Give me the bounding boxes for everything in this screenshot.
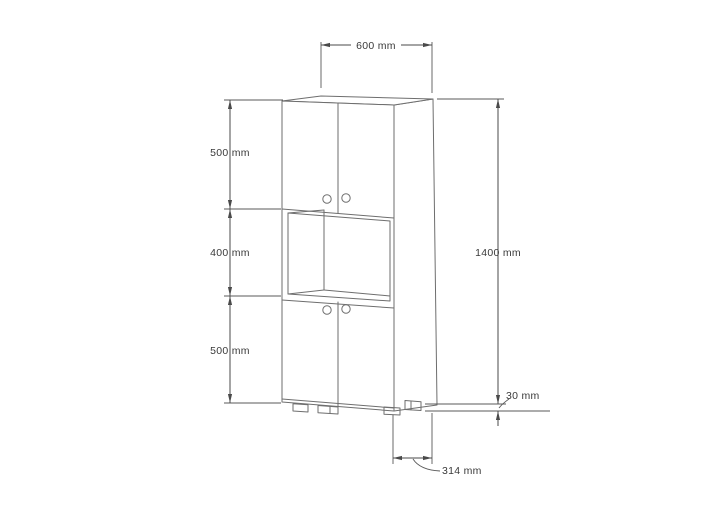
- dimension-sections: 500 mm 400 mm 500 mm: [210, 100, 283, 403]
- dim-label-top-section: 500 mm: [210, 147, 250, 159]
- foot: [293, 404, 308, 412]
- leader-line: [413, 459, 440, 471]
- foot: [318, 406, 338, 415]
- dimension-bottom-section: 500 mm: [210, 296, 250, 403]
- dim-label-middle-section: 400 mm: [210, 247, 250, 259]
- dimension-base-height: 30 mm: [425, 390, 550, 426]
- cabinet: [282, 96, 437, 415]
- dim-label-width: 600 mm: [356, 40, 396, 52]
- dimension-total-height: 1400 mm: [437, 99, 521, 404]
- diagram-canvas: 600 mm 500 mm 400 mm 500 mm 1400 mm 30 m…: [0, 0, 720, 509]
- dim-label-depth: 314 mm: [442, 465, 482, 477]
- cabinet-side-panel: [394, 99, 437, 411]
- dim-label-base-height: 30 mm: [506, 390, 540, 402]
- dimension-middle-section: 400 mm: [210, 209, 250, 296]
- dimension-top-section: 500 mm: [210, 100, 250, 209]
- dimension-depth: 314 mm: [393, 413, 482, 477]
- furniture-dimension-diagram: 600 mm 500 mm 400 mm 500 mm 1400 mm 30 m…: [0, 0, 720, 509]
- dim-label-bottom-section: 500 mm: [210, 345, 250, 357]
- dimension-width: 600 mm: [321, 40, 432, 93]
- dim-label-total-height: 1400 mm: [475, 247, 521, 259]
